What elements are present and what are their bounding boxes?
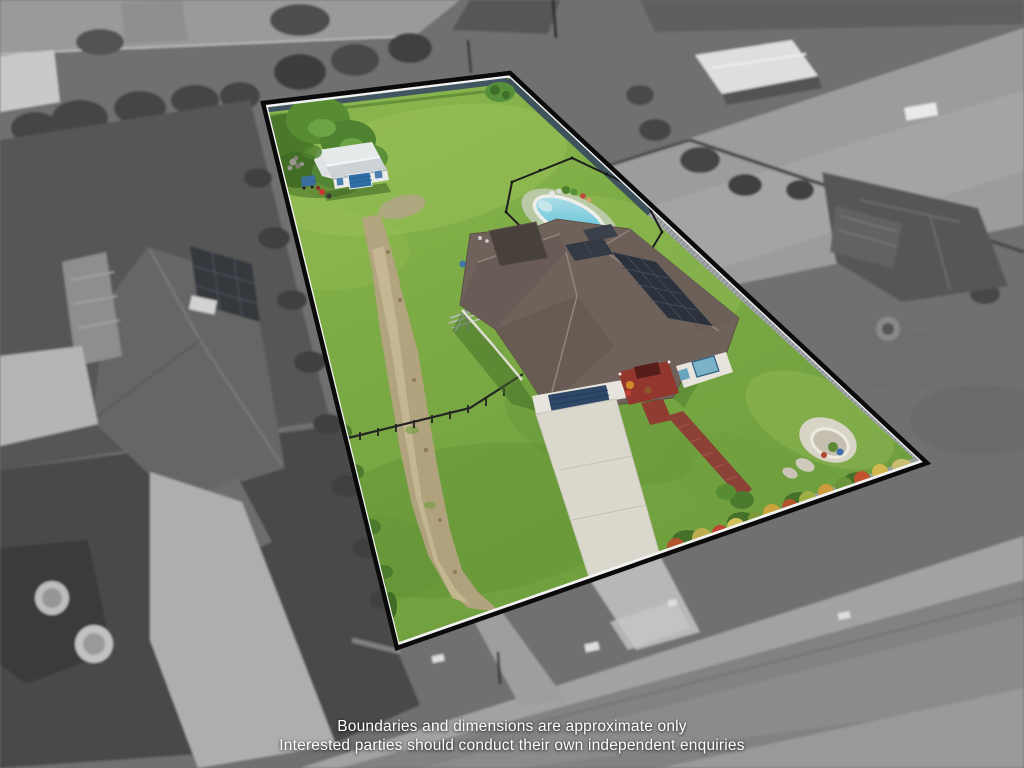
shed-window-right [374, 170, 383, 179]
shed-window-left [336, 177, 344, 186]
disclaimer-text: Boundaries and dimensions are approximat… [0, 718, 1024, 756]
aerial-photo-canvas [0, 0, 1024, 768]
person-in-red [319, 189, 325, 195]
corner-bush [485, 82, 515, 102]
neighbor-house-top [120, 0, 188, 44]
neighbor-house-topleft-white [0, 50, 60, 112]
blue-trailer [301, 175, 316, 187]
dog [645, 387, 652, 394]
neighbor-roof-top [452, 0, 560, 34]
aerial-photo: Boundaries and dimensions are approximat… [0, 0, 1024, 768]
disclaimer-line-1: Boundaries and dimensions are approximat… [0, 718, 1024, 737]
disclaimer-line-2: Interested parties should conduct their … [0, 737, 1024, 756]
